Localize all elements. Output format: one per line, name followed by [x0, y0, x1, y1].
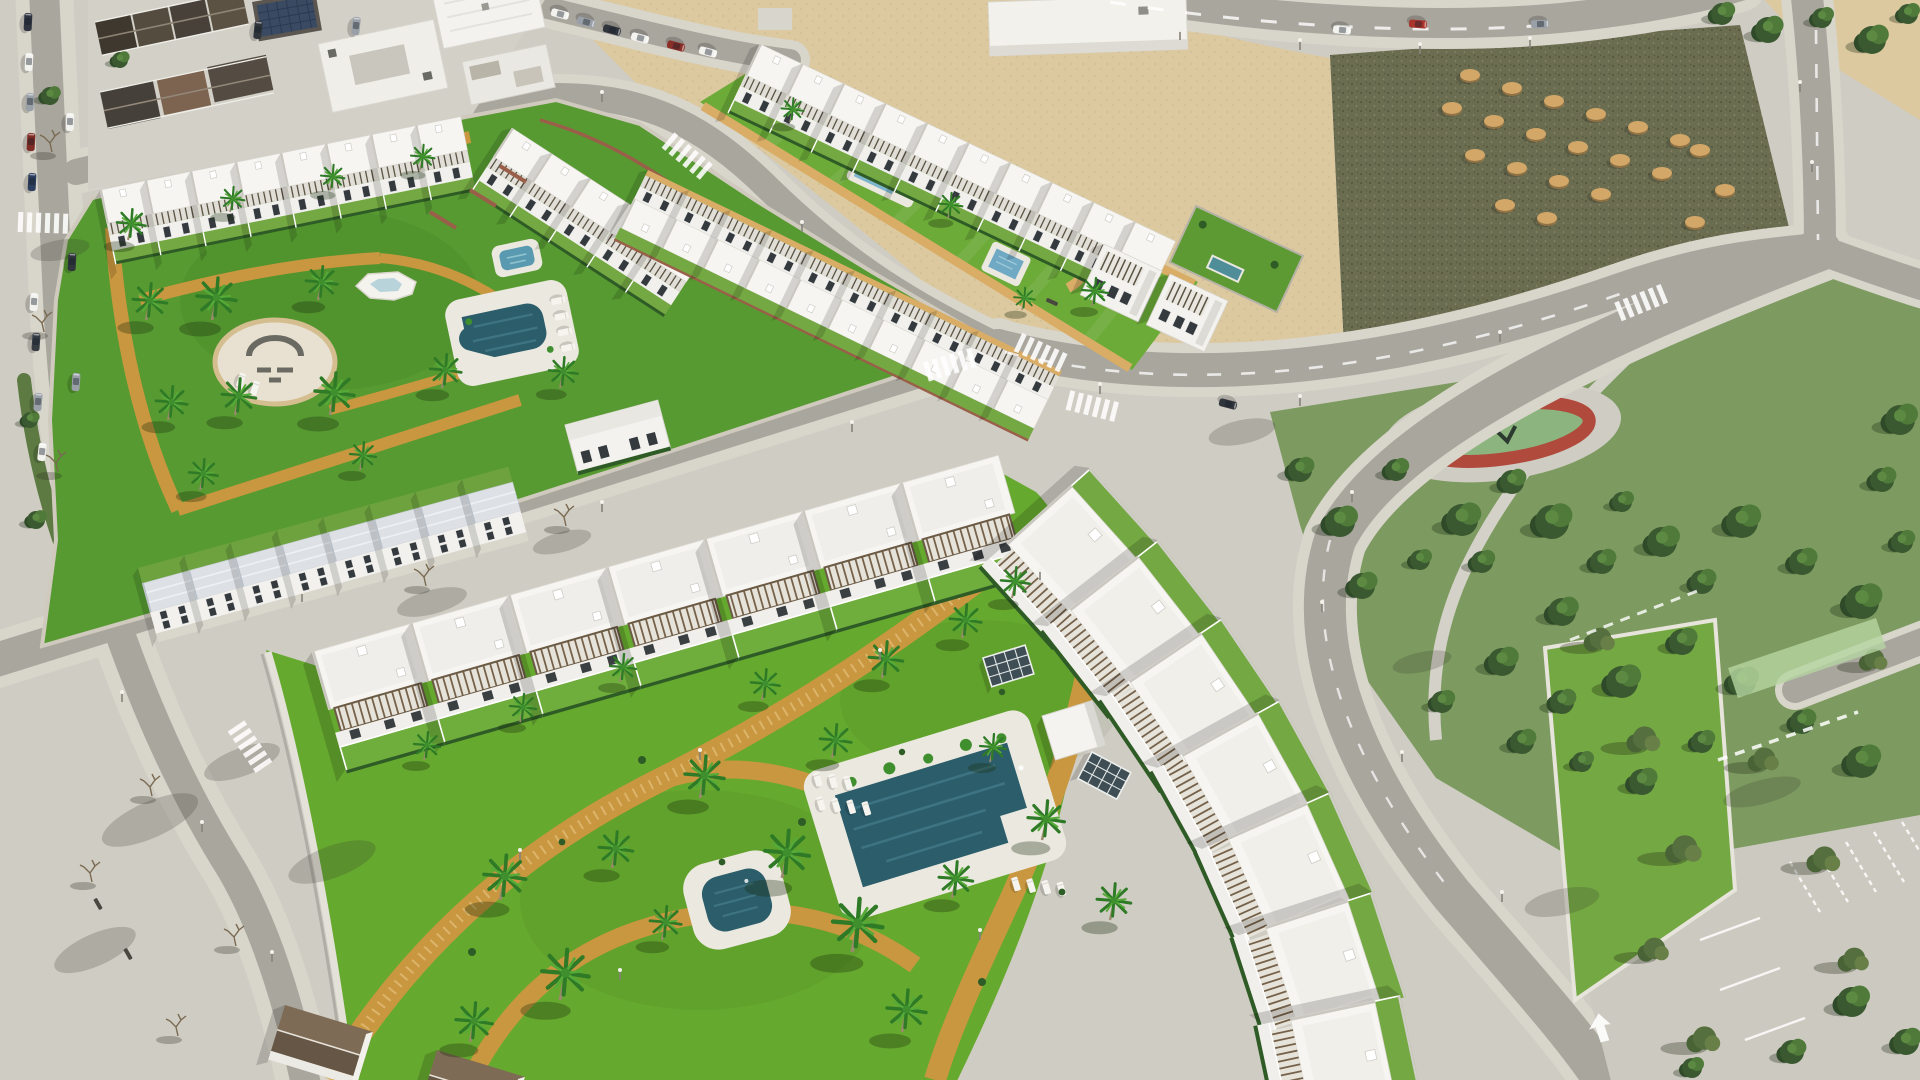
small-outbuilding — [758, 8, 792, 30]
aerial-screenshot: Aerial render of new-build residential d… — [0, 0, 1920, 1080]
aerial-scene: Aerial render of new-build residential d… — [0, 0, 1920, 1080]
